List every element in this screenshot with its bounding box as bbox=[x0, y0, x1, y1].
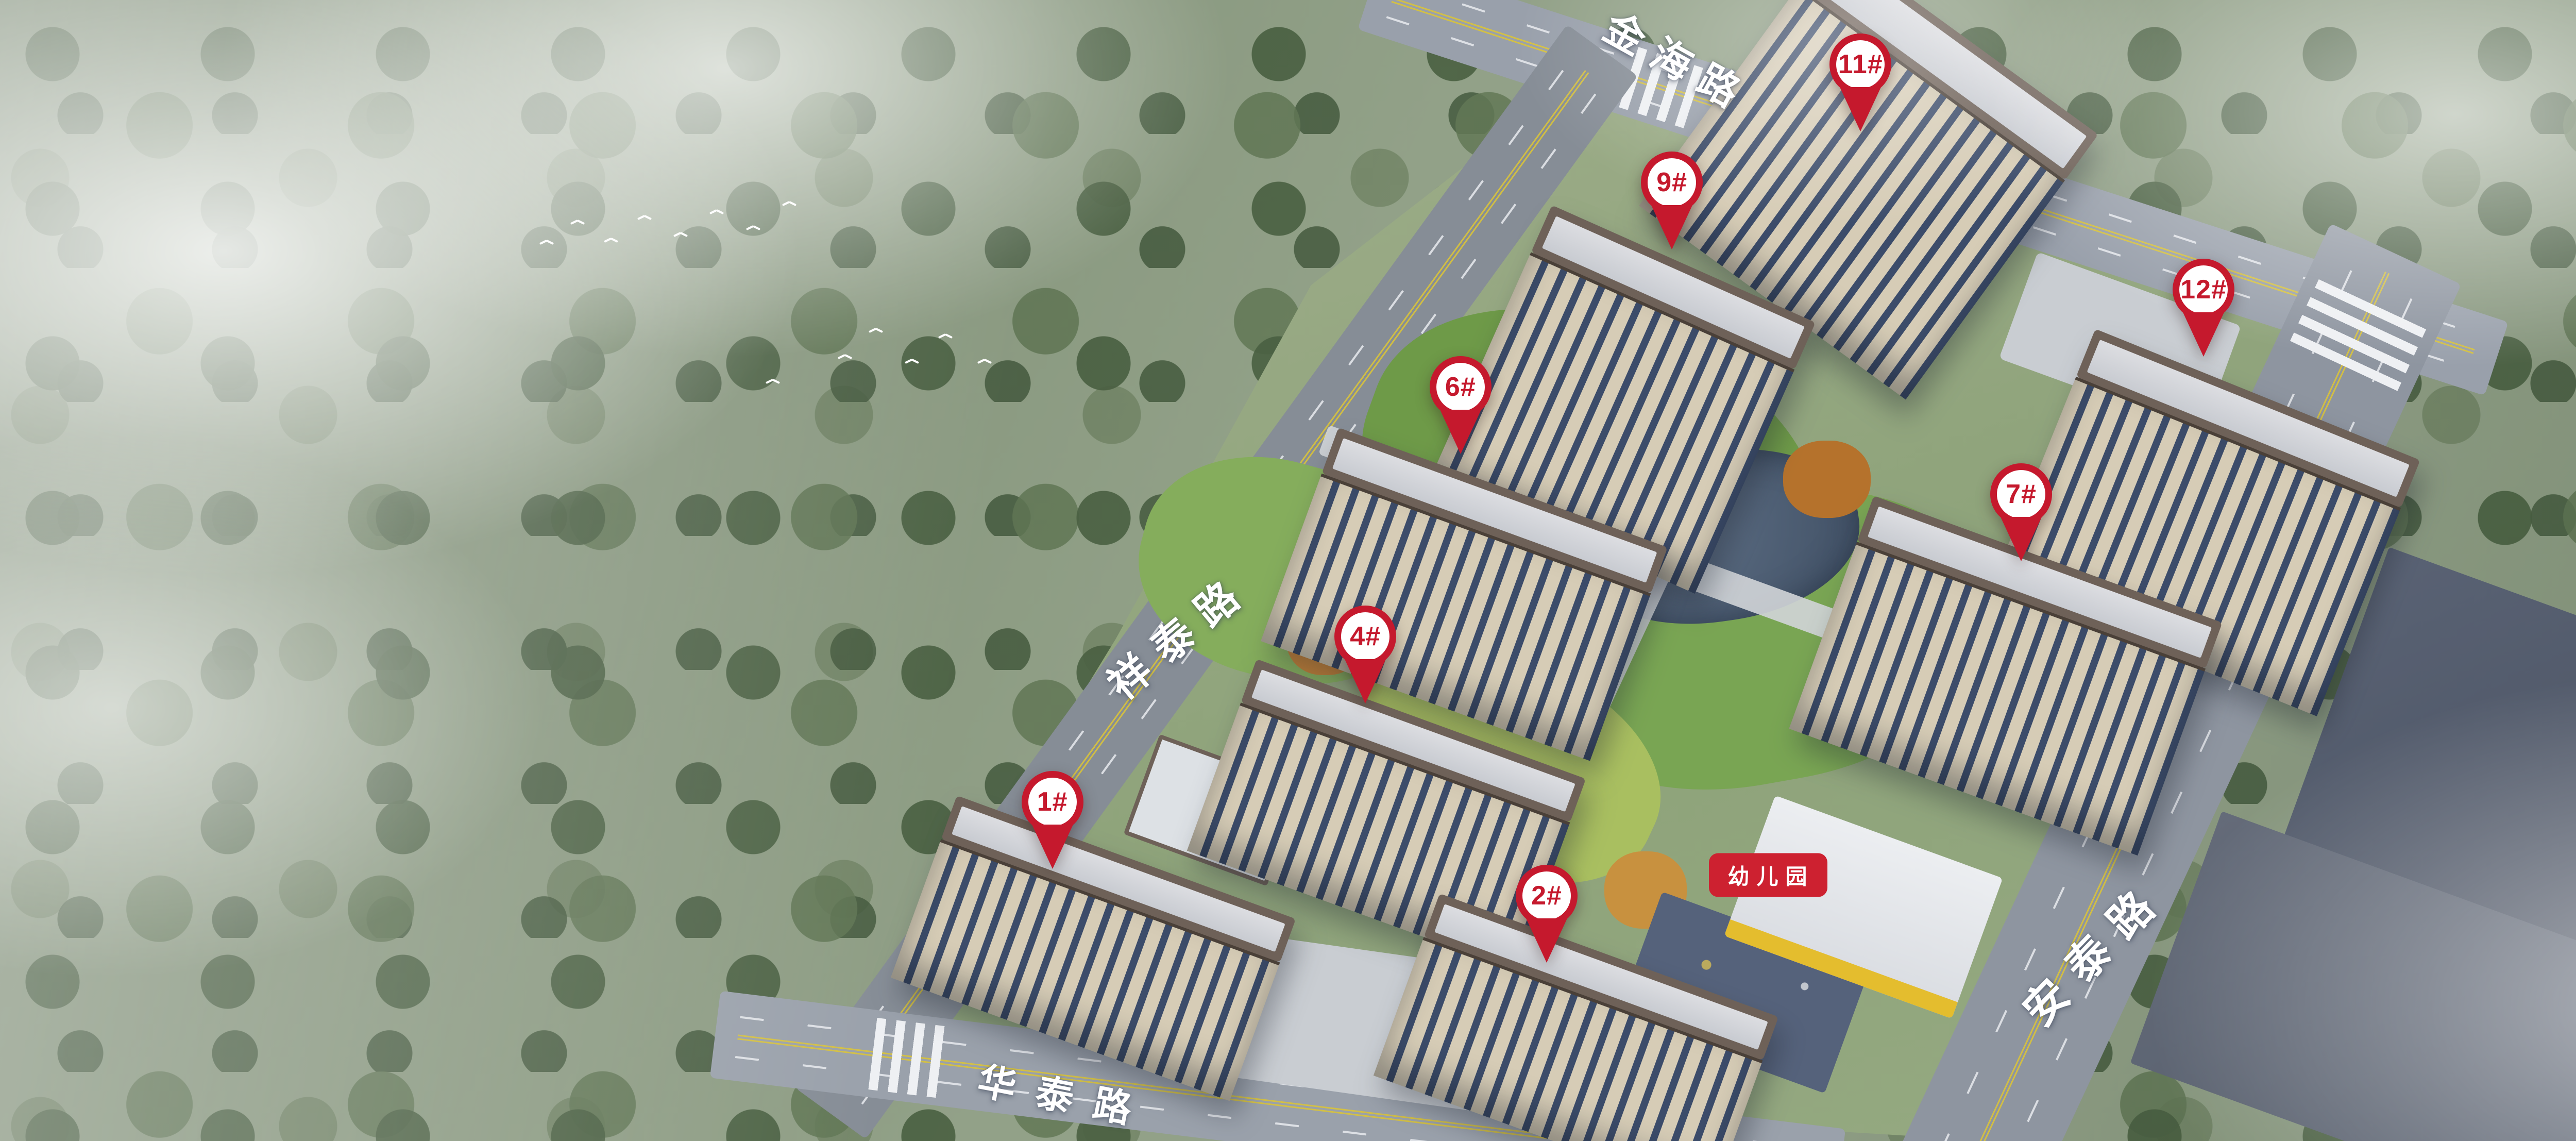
marker-label: 1# bbox=[1037, 786, 1068, 817]
bird-icon bbox=[637, 213, 652, 221]
marker-label: 9# bbox=[1656, 167, 1687, 198]
bird-icon bbox=[766, 377, 780, 384]
crosswalk bbox=[868, 1018, 954, 1099]
crosswalk bbox=[2290, 271, 2430, 391]
bird-icon bbox=[977, 357, 992, 364]
bird-icon bbox=[746, 224, 760, 231]
autumn-tree bbox=[1783, 441, 1871, 518]
bird-icon bbox=[782, 199, 796, 207]
marker-pointer bbox=[1651, 205, 1692, 249]
marker-circle: 2# bbox=[1516, 865, 1578, 927]
bird-icon bbox=[838, 353, 852, 360]
bird-icon bbox=[869, 326, 883, 333]
marker-pointer bbox=[1345, 659, 1386, 703]
marker-circle: 6# bbox=[1430, 356, 1492, 418]
marker-circle: 12# bbox=[2173, 259, 2234, 321]
marker-label: 4# bbox=[1350, 621, 1381, 652]
bird-icon bbox=[604, 236, 618, 243]
building-marker-6[interactable]: 6# bbox=[1430, 356, 1492, 454]
kindergarten-badge: 幼儿园 bbox=[1709, 853, 1827, 897]
marker-pointer bbox=[2183, 312, 2224, 357]
bird-icon bbox=[938, 332, 953, 339]
building-marker-11[interactable]: 11# bbox=[1829, 33, 1891, 131]
marker-pointer bbox=[1526, 918, 1567, 963]
marker-circle: 9# bbox=[1641, 152, 1703, 213]
marker-label: 6# bbox=[1445, 372, 1476, 402]
building-marker-12[interactable]: 12# bbox=[2173, 259, 2234, 357]
marker-label: 2# bbox=[1531, 880, 1562, 911]
marker-label: 7# bbox=[2006, 479, 2037, 510]
bird-icon bbox=[539, 238, 554, 245]
building-marker-2[interactable]: 2# bbox=[1516, 865, 1578, 963]
marker-pointer bbox=[1840, 87, 1881, 131]
marker-label: 12# bbox=[2180, 274, 2227, 305]
marker-circle: 4# bbox=[1334, 606, 1396, 667]
building-marker-7[interactable]: 7# bbox=[1990, 463, 2052, 561]
marker-circle: 1# bbox=[1022, 771, 1083, 833]
bird-icon bbox=[673, 230, 688, 238]
building-marker-4[interactable]: 4# bbox=[1334, 606, 1396, 703]
marker-circle: 11# bbox=[1829, 33, 1891, 95]
building-marker-9[interactable]: 9# bbox=[1641, 152, 1703, 249]
marker-pointer bbox=[2001, 517, 2042, 561]
building-marker-1[interactable]: 1# bbox=[1022, 771, 1083, 869]
marker-pointer bbox=[1440, 410, 1481, 454]
marker-circle: 7# bbox=[1990, 463, 2052, 525]
bird-icon bbox=[709, 208, 724, 215]
aerial-rendering: 金海路 祥泰路 安泰路 华泰路 幼儿园 11# 9# 12# 6# 7# 4# … bbox=[0, 0, 2576, 1141]
bird-icon bbox=[570, 218, 585, 225]
marker-pointer bbox=[1032, 825, 1073, 869]
bird-icon bbox=[905, 357, 919, 364]
marker-label: 11# bbox=[1838, 49, 1883, 80]
